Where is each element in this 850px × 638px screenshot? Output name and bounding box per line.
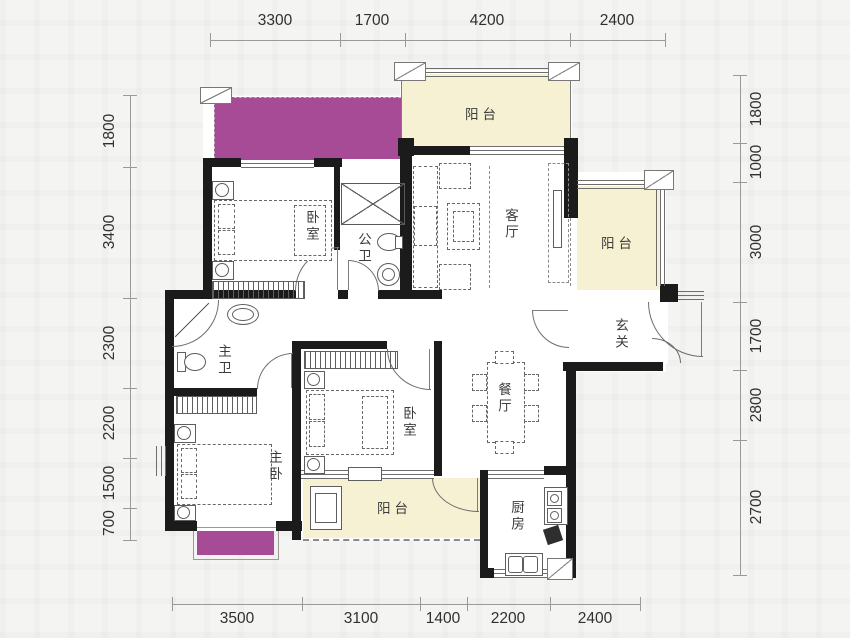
dim-rail-top <box>210 40 666 41</box>
column-marker <box>548 62 580 81</box>
armchair <box>439 264 471 290</box>
dim-top-1700: 1700 <box>332 12 412 30</box>
tick <box>123 540 137 541</box>
dim-top-2400: 2400 <box>577 12 657 30</box>
lamp <box>215 263 229 277</box>
wardrobe <box>304 351 398 369</box>
pillow <box>309 421 325 447</box>
tick <box>550 597 551 611</box>
door-leaf <box>337 247 338 290</box>
room-label-bath-master: 主卫 <box>213 344 233 377</box>
column-marker <box>200 87 232 104</box>
toilet-tank <box>395 236 403 249</box>
dim-bottom-3500: 3500 <box>197 610 277 628</box>
wall <box>292 341 301 540</box>
room-label-dining: 餐厅 <box>493 382 513 415</box>
gift-area-top <box>214 97 401 159</box>
toilet <box>184 353 206 371</box>
sliding-door <box>488 470 544 479</box>
wall <box>338 290 348 299</box>
tick <box>665 33 666 47</box>
chair <box>524 374 539 391</box>
tick <box>733 302 747 303</box>
pillow <box>181 448 197 473</box>
dim-rail-bottom <box>172 604 640 605</box>
wall <box>334 167 340 250</box>
tick <box>733 575 747 576</box>
door-leaf <box>532 310 568 311</box>
rug-edge <box>489 166 491 288</box>
gift-area-bottom <box>197 531 274 555</box>
sink-bowl <box>382 268 395 281</box>
armchair <box>439 163 471 189</box>
tick <box>210 33 211 47</box>
burner-ring <box>550 511 559 520</box>
tick <box>570 33 571 47</box>
column-marker <box>644 170 674 190</box>
bed-foot <box>362 396 388 449</box>
dim-top-4200: 4200 <box>447 12 527 30</box>
lamp <box>177 506 190 519</box>
dim-right-1000: 1000 <box>748 132 766 192</box>
chair <box>472 374 487 391</box>
wall <box>314 158 342 167</box>
dim-bottom-2400: 2400 <box>555 610 635 628</box>
floor <box>210 296 580 341</box>
wardrobe <box>176 396 257 414</box>
dim-right-3000: 3000 <box>748 212 766 272</box>
tick <box>467 597 468 611</box>
wall <box>165 388 174 531</box>
sliding-door-track <box>348 467 382 481</box>
washing-machine-door <box>315 493 337 523</box>
wall <box>301 341 387 349</box>
tick <box>123 458 137 459</box>
dim-right-2800: 2800 <box>748 375 766 435</box>
wall <box>434 341 442 476</box>
entry-door-leaf <box>701 302 702 356</box>
room-label-bedroom1: 卧室 <box>301 210 321 243</box>
wall <box>203 158 212 299</box>
dim-left-700: 700 <box>101 493 119 553</box>
pillow <box>181 474 197 499</box>
dim-rail-left <box>130 95 131 540</box>
coffee-table-inner <box>453 211 474 242</box>
lamp <box>215 183 229 197</box>
door-leaf <box>477 478 478 511</box>
tick <box>302 597 303 611</box>
wall <box>563 362 663 371</box>
lamp <box>177 426 191 440</box>
dim-left-2300: 2300 <box>101 313 119 373</box>
room-label-balcony-right: 阳台 <box>601 232 636 252</box>
window <box>577 180 650 189</box>
sink-bowl <box>508 556 523 573</box>
wall-line <box>678 291 704 300</box>
dim-left-2200: 2200 <box>101 393 119 453</box>
balcony-side-line <box>401 80 402 138</box>
door-leaf <box>348 260 349 290</box>
dim-right-2700: 2700 <box>748 477 766 537</box>
tick <box>340 33 341 47</box>
sink-bowl <box>232 308 254 321</box>
dim-left-1800: 1800 <box>101 101 119 161</box>
wall <box>660 284 678 302</box>
room-label-kitchen: 厨房 <box>506 500 526 533</box>
wall <box>544 466 566 475</box>
tick <box>420 597 421 611</box>
tv-panel <box>553 190 562 248</box>
wall <box>480 470 488 578</box>
tick <box>733 440 747 441</box>
dim-bottom-3100: 3100 <box>321 610 401 628</box>
shower-box <box>341 183 405 225</box>
door-leaf <box>291 353 292 388</box>
room-label-balcony-bottom: 阳台 <box>377 497 412 517</box>
chair <box>472 405 487 422</box>
wall <box>165 521 197 531</box>
wall <box>378 290 442 299</box>
tick <box>405 33 406 47</box>
window <box>241 159 314 168</box>
tick <box>123 298 137 299</box>
wall <box>174 388 257 396</box>
dim-bottom-2200: 2200 <box>468 610 548 628</box>
room-label-master-bedroom: 主卧 <box>264 450 284 483</box>
dim-right-1700: 1700 <box>748 306 766 366</box>
wall <box>412 146 470 155</box>
dim-rail-right <box>740 75 741 575</box>
floor-plan-page: { "rooms": { "balcony_top": "阳台", "livin… <box>0 0 850 638</box>
window <box>156 446 166 476</box>
lamp <box>307 458 320 471</box>
dim-left-3400: 3400 <box>101 202 119 262</box>
wall <box>482 568 494 578</box>
room-label-foyer: 玄关 <box>610 318 630 351</box>
tick <box>123 508 137 509</box>
door-leaf <box>429 349 430 389</box>
open-boundary <box>570 218 572 286</box>
dim-right-1800: 1800 <box>748 79 766 139</box>
room-label-bedroom2: 卧室 <box>398 406 418 439</box>
window <box>656 187 665 286</box>
column-marker <box>394 62 426 81</box>
wall <box>276 521 302 531</box>
pillow <box>309 394 325 420</box>
balcony-railing <box>303 537 480 541</box>
wardrobe <box>212 281 305 299</box>
tick <box>123 388 137 389</box>
balcony-side-line <box>570 80 571 138</box>
room-label-bath-public: 公卫 <box>353 232 373 265</box>
tick <box>733 182 747 183</box>
pillow <box>218 230 235 255</box>
wall <box>566 371 576 578</box>
tick <box>640 597 641 611</box>
pillow <box>218 204 235 229</box>
tick <box>733 370 747 371</box>
burner-ring <box>550 494 559 503</box>
room-label-living: 客厅 <box>500 208 520 241</box>
tick <box>172 597 173 611</box>
sofa-cushion <box>414 206 437 246</box>
tick <box>733 75 747 76</box>
sink-bowl <box>523 556 538 573</box>
tick <box>123 167 137 168</box>
chair <box>524 405 539 422</box>
dim-top-3300: 3300 <box>235 12 315 30</box>
tick <box>123 95 137 96</box>
room-label-balcony-top: 阳台 <box>465 103 500 123</box>
tick <box>733 143 747 144</box>
chair <box>495 441 514 454</box>
chair <box>495 351 514 364</box>
shower-diagonal <box>175 303 209 337</box>
sliding-door <box>470 146 564 155</box>
lamp <box>307 373 320 386</box>
column-marker <box>547 558 573 580</box>
